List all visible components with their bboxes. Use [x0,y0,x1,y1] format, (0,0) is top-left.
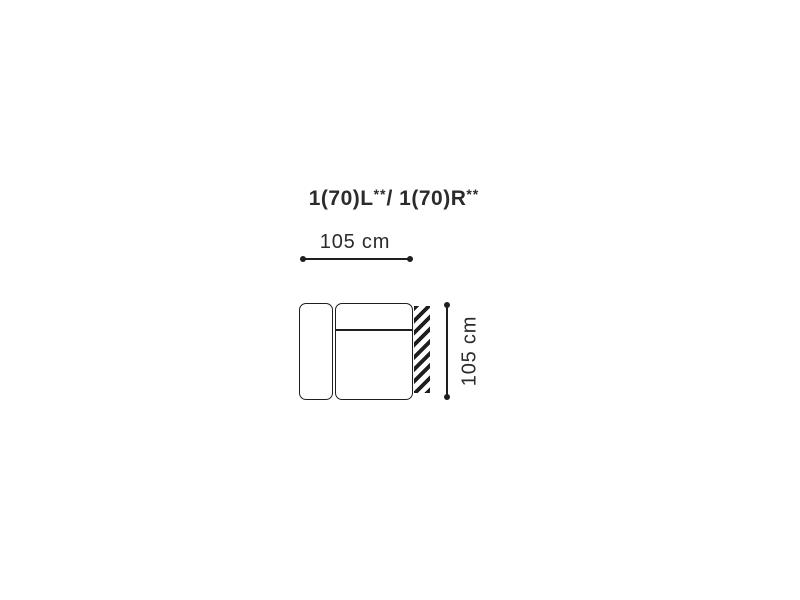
backrest-divider-line [336,329,412,331]
width-dimension-right-endpoint-dot [407,256,413,262]
module-title-left-code: 1(70)L [309,187,374,210]
width-dimension-label: 105 cm [320,231,390,254]
height-dimension-line [446,304,448,398]
sofa-armrest [299,303,333,400]
module-title-right-asterisks: ** [466,186,479,202]
module-title: 1(70)L**/ 1(70)R** [309,186,480,211]
height-dimension-top-endpoint-dot [444,302,450,308]
sofa-seat [335,303,413,400]
module-title-right-code: / 1(70)R [387,187,467,210]
width-dimension-left-endpoint-dot [300,256,306,262]
height-dimension-label: 105 cm [459,316,482,386]
wall-side-hatch [414,306,430,393]
sofa-module-dimension-diagram: 1(70)L**/ 1(70)R** 105 cm 105 cm [0,0,800,600]
module-title-left-asterisks: ** [374,186,387,202]
width-dimension-line [302,258,411,260]
height-dimension-bottom-endpoint-dot [444,394,450,400]
